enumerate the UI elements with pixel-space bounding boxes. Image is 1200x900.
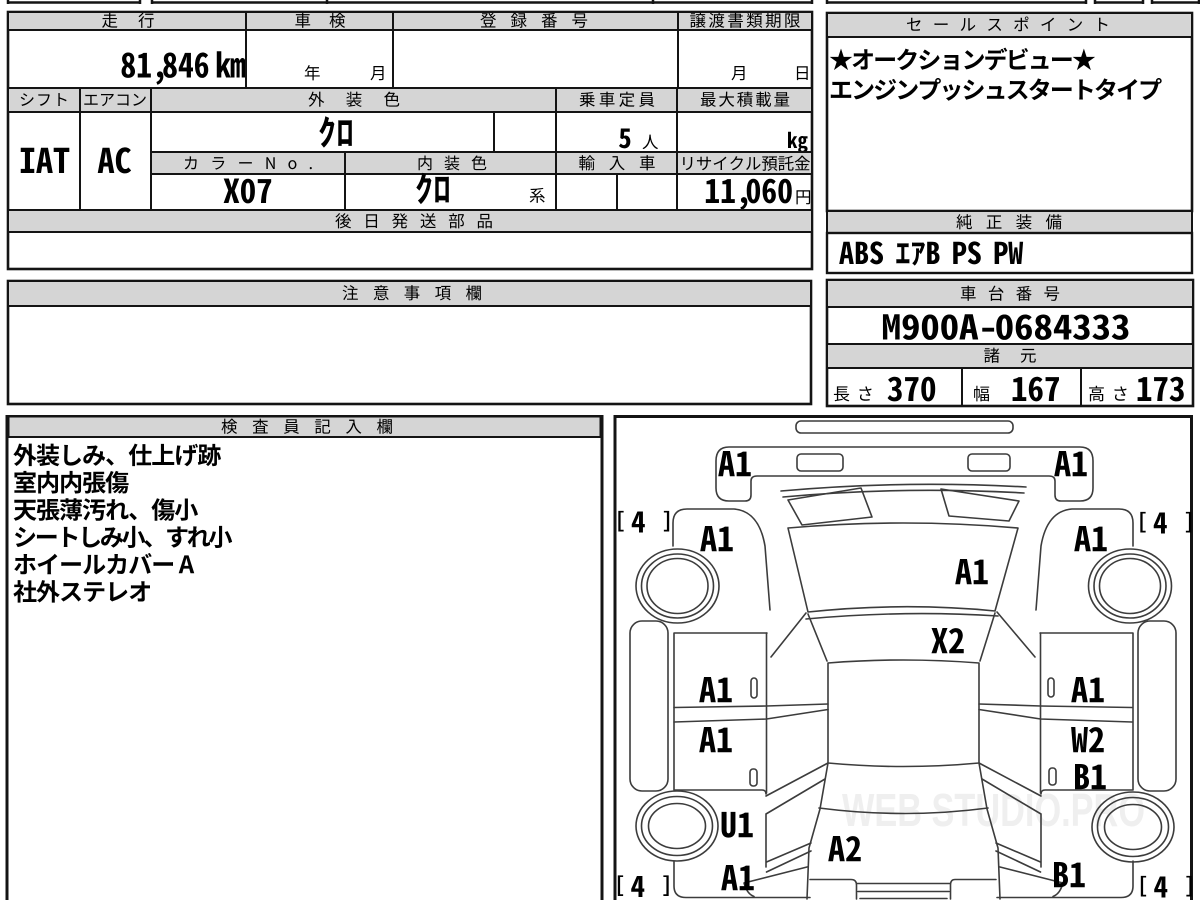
svg-text:WEB STUDIO.PRO: WEB STUDIO.PRO <box>842 784 1145 836</box>
